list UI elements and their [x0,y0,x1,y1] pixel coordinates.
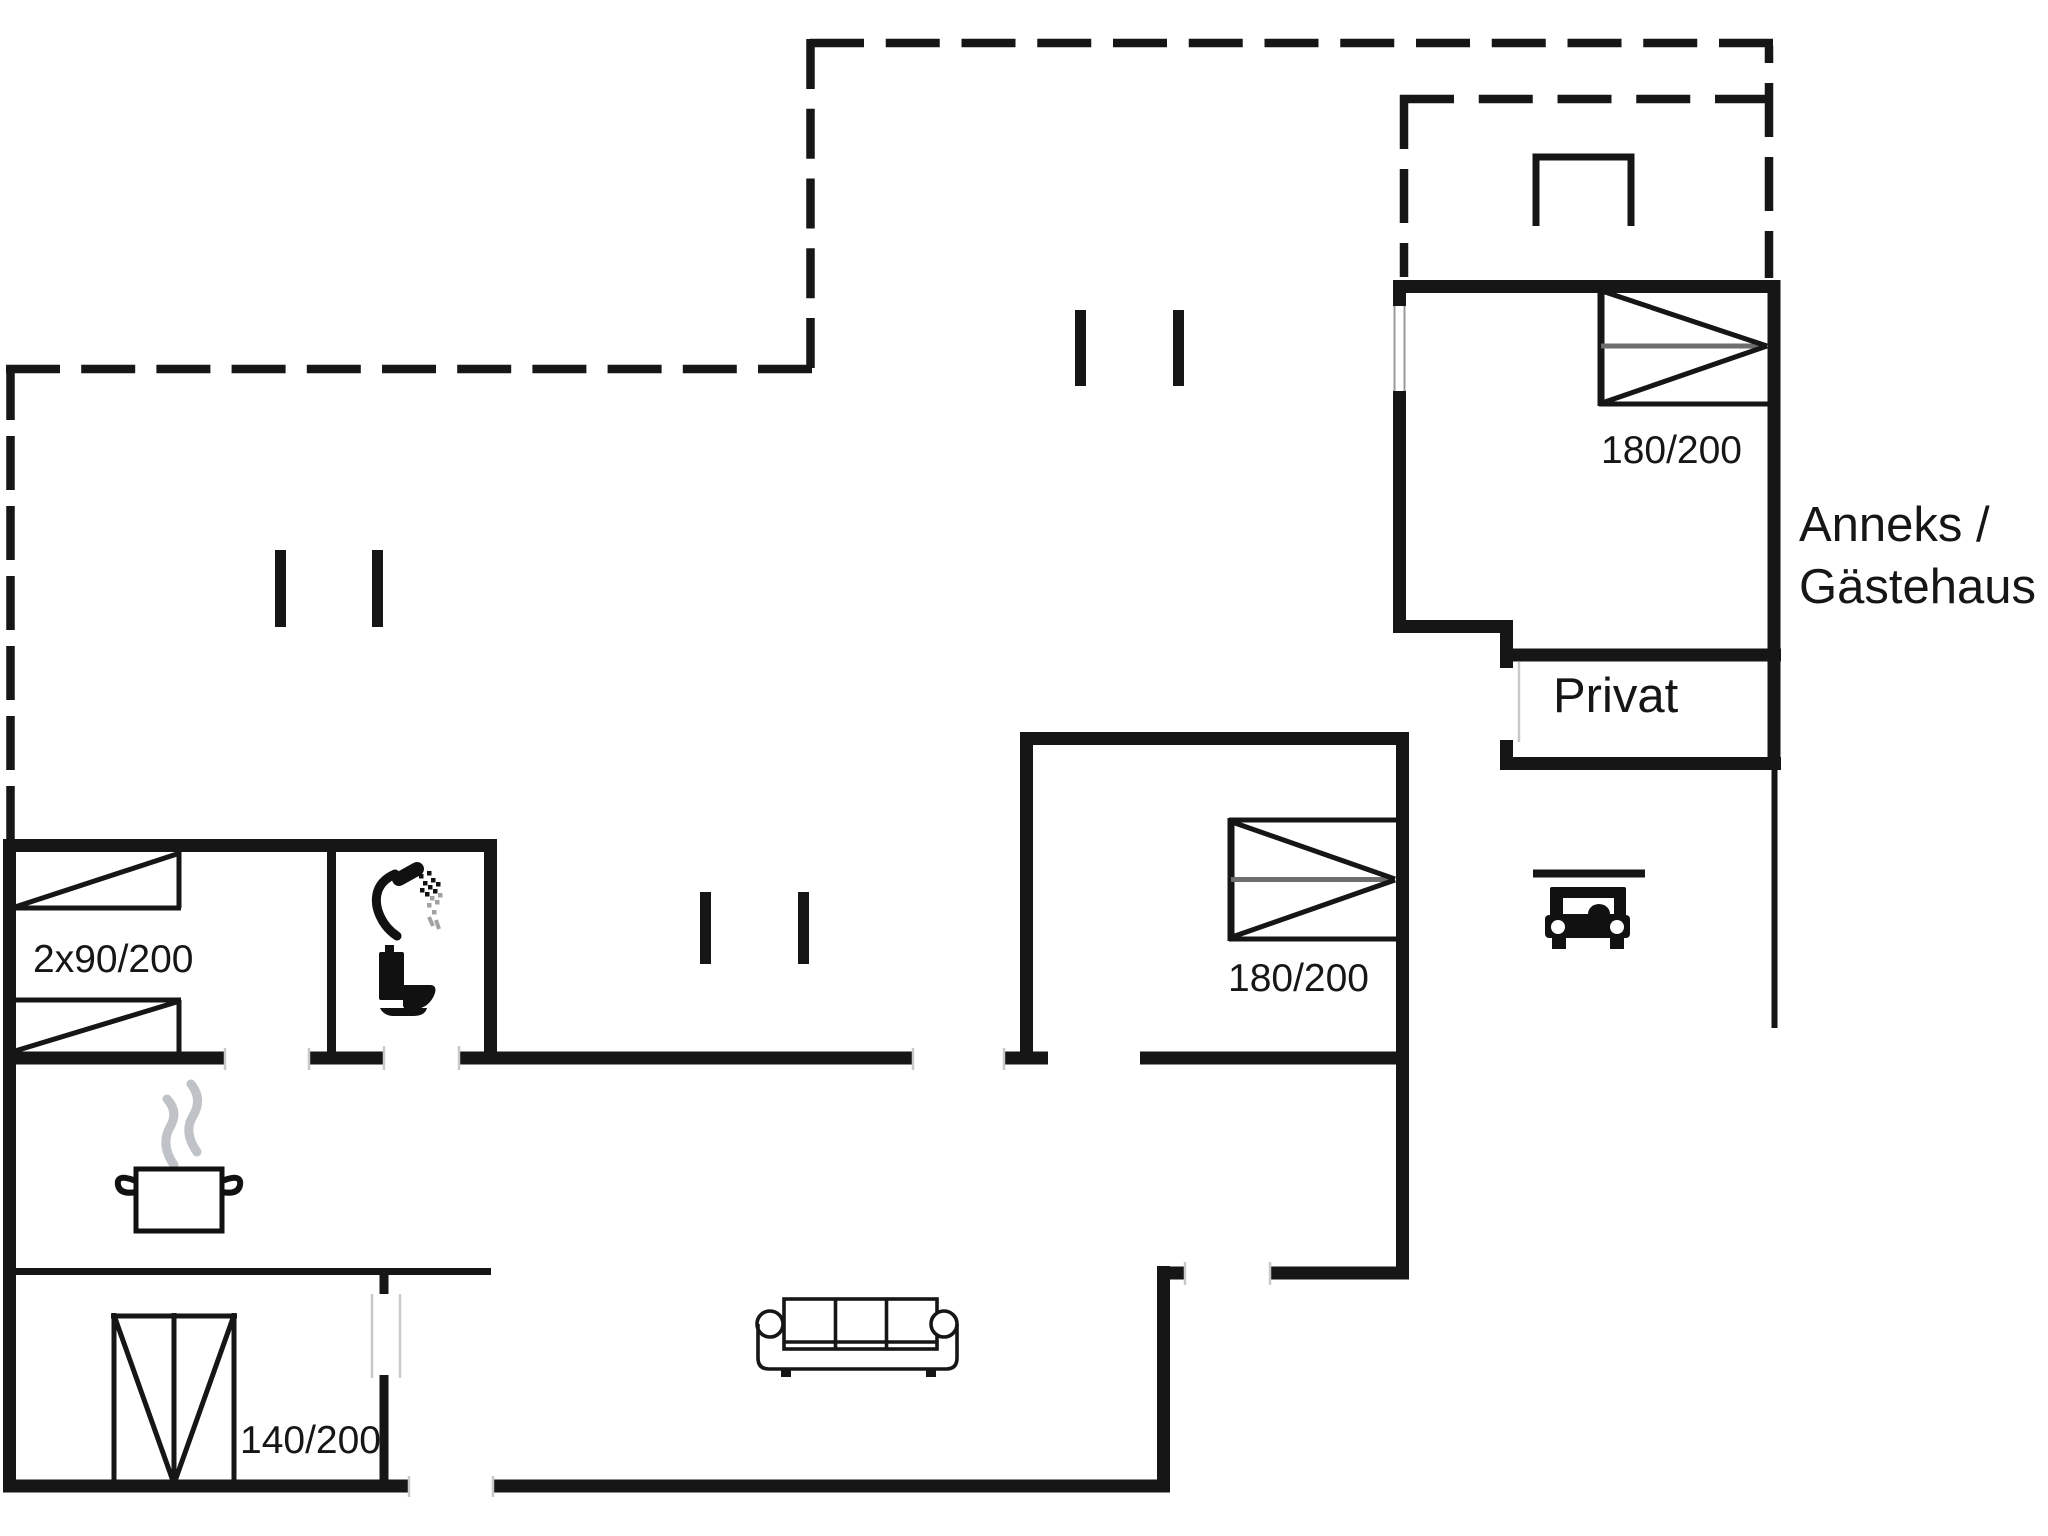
svg-text:Gästehaus: Gästehaus [1799,560,2036,614]
svg-text:Anneks /: Anneks / [1799,498,1990,552]
svg-text:Privat: Privat [1553,669,1679,723]
svg-text:180/200: 180/200 [1228,957,1369,1000]
svg-text:140/200: 140/200 [240,1419,381,1462]
svg-text:180/200: 180/200 [1601,429,1742,472]
svg-text:2x90/200: 2x90/200 [33,938,193,981]
